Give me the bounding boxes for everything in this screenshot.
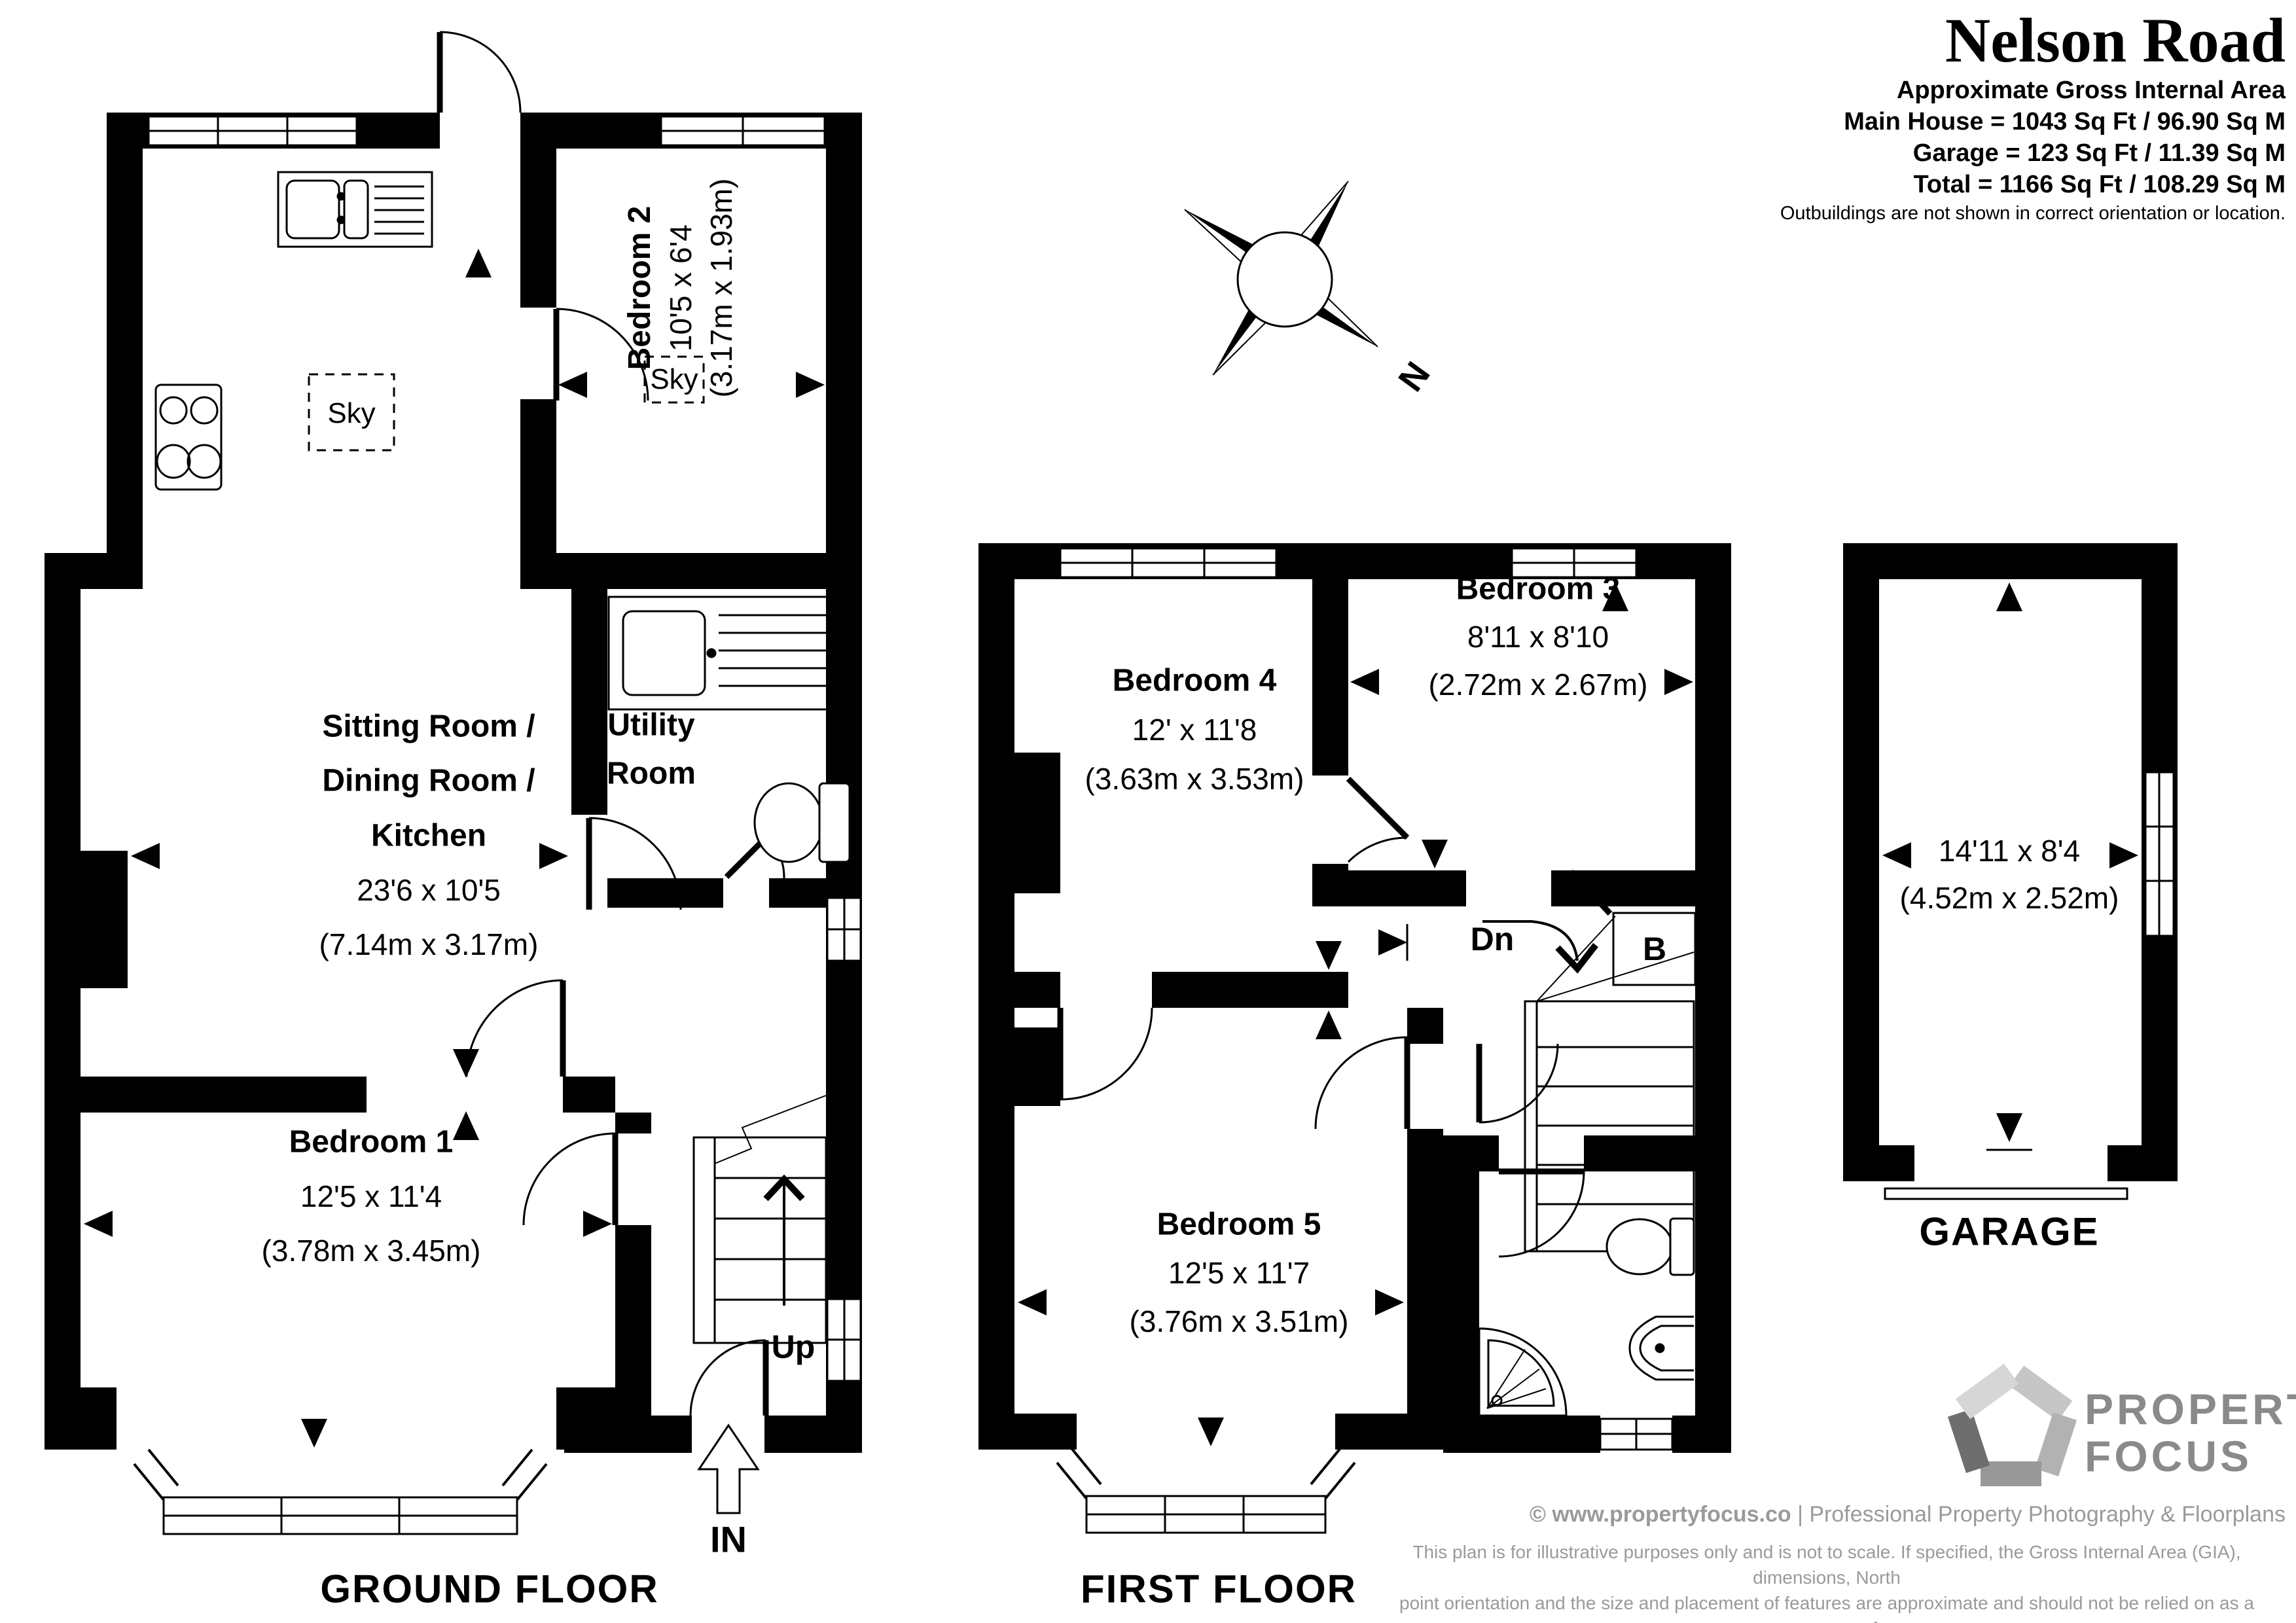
area-main-house: Main House = 1043 Sq Ft / 96.90 Sq M [1780, 106, 2286, 137]
kitchen-label: Kitchen [371, 818, 486, 854]
copyright-url: © www.propertyfocus.co [1530, 1502, 1791, 1527]
floorplan-page: Nelson Road Approximate Gross Internal A… [0, 0, 2296, 1623]
bedroom5-door [1316, 1037, 1407, 1129]
sitting-room-label: Sitting Room / [322, 709, 535, 745]
property-focus-logo-icon [1960, 1374, 2065, 1474]
entrance-door [691, 1340, 766, 1416]
stairs-side-window [827, 1299, 861, 1381]
ground-floor-windows [134, 116, 861, 1534]
first-floor-doors [1060, 779, 1610, 1257]
ground-floor-title: GROUND FLOOR [320, 1567, 658, 1612]
bathroom-shower [1479, 1329, 1566, 1416]
bedroom3-label: Bedroom 3 [1456, 571, 1621, 607]
bedroom5-dims-metric: (3.76m x 3.51m) [1130, 1304, 1349, 1339]
bedroom1-dims-metric: (3.78m x 3.45m) [262, 1233, 481, 1268]
bedroom1-bay-window [134, 1450, 547, 1534]
bathroom-door [1499, 1171, 1584, 1257]
skylight-bedroom2-label: Sky [650, 363, 698, 396]
kitchen-window [149, 116, 357, 145]
title-block: Nelson Road Approximate Gross Internal A… [1780, 7, 2286, 226]
bedroom3-dims-metric: (2.72m x 2.67m) [1429, 667, 1648, 702]
bedroom4-window [1060, 548, 1276, 577]
landing-door [1479, 1044, 1558, 1122]
front-door [440, 32, 520, 113]
compass-circle [1238, 232, 1332, 327]
bedroom2-window [661, 116, 825, 145]
bedroom3-dims-imperial: 8'11 x 8'10 [1467, 619, 1609, 654]
garage-plan [1843, 543, 2178, 1199]
disclaimer: This plan is for illustrative purposes o… [1365, 1539, 2289, 1623]
bedroom1-dims-imperial: 12'5 x 11'4 [300, 1179, 442, 1214]
disclaimer-line2: point orientation and the size and place… [1365, 1590, 2289, 1623]
utility-room-label-line1: Utility [607, 707, 694, 743]
entrance-in-label: IN [710, 1518, 747, 1561]
hall-side-window [827, 898, 861, 961]
garage-dims-metric: (4.52m x 2.52m) [1900, 880, 2119, 916]
bedroom2-dims-metric: (3.17m x 1.93m) [701, 179, 742, 398]
area-heading: Approximate Gross Internal Area [1780, 75, 2286, 106]
stairs-up-label: Up [772, 1328, 816, 1366]
bedroom4-label: Bedroom 4 [1113, 663, 1277, 699]
brand-focus: FOCUS [2085, 1435, 2252, 1478]
boiler-label: B [1643, 930, 1666, 968]
bedroom5-dims-imperial: 12'5 x 11'7 [1168, 1255, 1310, 1291]
bathroom-toilet [1607, 1219, 1694, 1275]
utility-room-label-line2: Room [607, 756, 696, 792]
bedroom4-dims-metric: (3.63m x 3.53m) [1085, 761, 1304, 796]
area-garage: Garage = 123 Sq Ft / 11.39 Sq M [1780, 137, 2286, 169]
bedroom1-label: Bedroom 1 [289, 1124, 454, 1160]
bathroom-window [1600, 1419, 1672, 1450]
bedroom3-door [1348, 779, 1407, 862]
entrance-in-arrow [699, 1425, 758, 1513]
copyright-tagline: | Professional Property Photography & Fl… [1791, 1502, 2286, 1527]
garage-window [2145, 772, 2174, 936]
orientation-note: Outbuildings are not shown in correct or… [1780, 200, 2286, 226]
kitchen-sink [278, 172, 432, 247]
property-title: Nelson Road [1780, 7, 2286, 75]
copyright-line: © www.propertyfocus.co | Professional Pr… [1530, 1502, 2286, 1527]
floorplan-drawing [0, 0, 2296, 1623]
ground-toilet [755, 783, 850, 862]
area-total: Total = 1166 Sq Ft / 108.29 Sq M [1780, 169, 2286, 200]
compass-rose [1185, 181, 1378, 375]
first-floor-title: FIRST FLOOR [1081, 1567, 1357, 1612]
skylight-kitchen-label: Sky [327, 397, 375, 430]
garage-door [1885, 1188, 2127, 1199]
garage-title: GARAGE [1919, 1209, 2099, 1255]
bedroom4-dims-imperial: 12' x 11'8 [1132, 712, 1257, 747]
hob [156, 385, 221, 490]
sitting-room-dims-imperial: 23'6 x 10'5 [357, 872, 501, 908]
dining-room-label: Dining Room / [322, 763, 535, 799]
garage-dims-imperial: 14'11 x 8'4 [1939, 833, 2080, 868]
disclaimer-line1: This plan is for illustrative purposes o… [1365, 1539, 2289, 1590]
ground-floor-stairs [694, 1096, 826, 1343]
bedroom5-bay-window [1057, 1448, 1355, 1533]
bedroom5-closet-door [1060, 1008, 1152, 1099]
bedroom5-label: Bedroom 5 [1157, 1207, 1321, 1243]
first-floor-dimension-arrows [1018, 582, 1693, 1446]
brand-property: PROPERTY [2085, 1387, 2296, 1431]
sitting-room-door [467, 980, 563, 1077]
stairs-dn-label: Dn [1471, 920, 1515, 958]
sitting-room-dims-metric: (7.14m x 3.17m) [319, 927, 539, 962]
utility-sink [609, 597, 854, 709]
bathroom-basin [1630, 1317, 1694, 1380]
bedroom1-door [524, 1133, 615, 1225]
